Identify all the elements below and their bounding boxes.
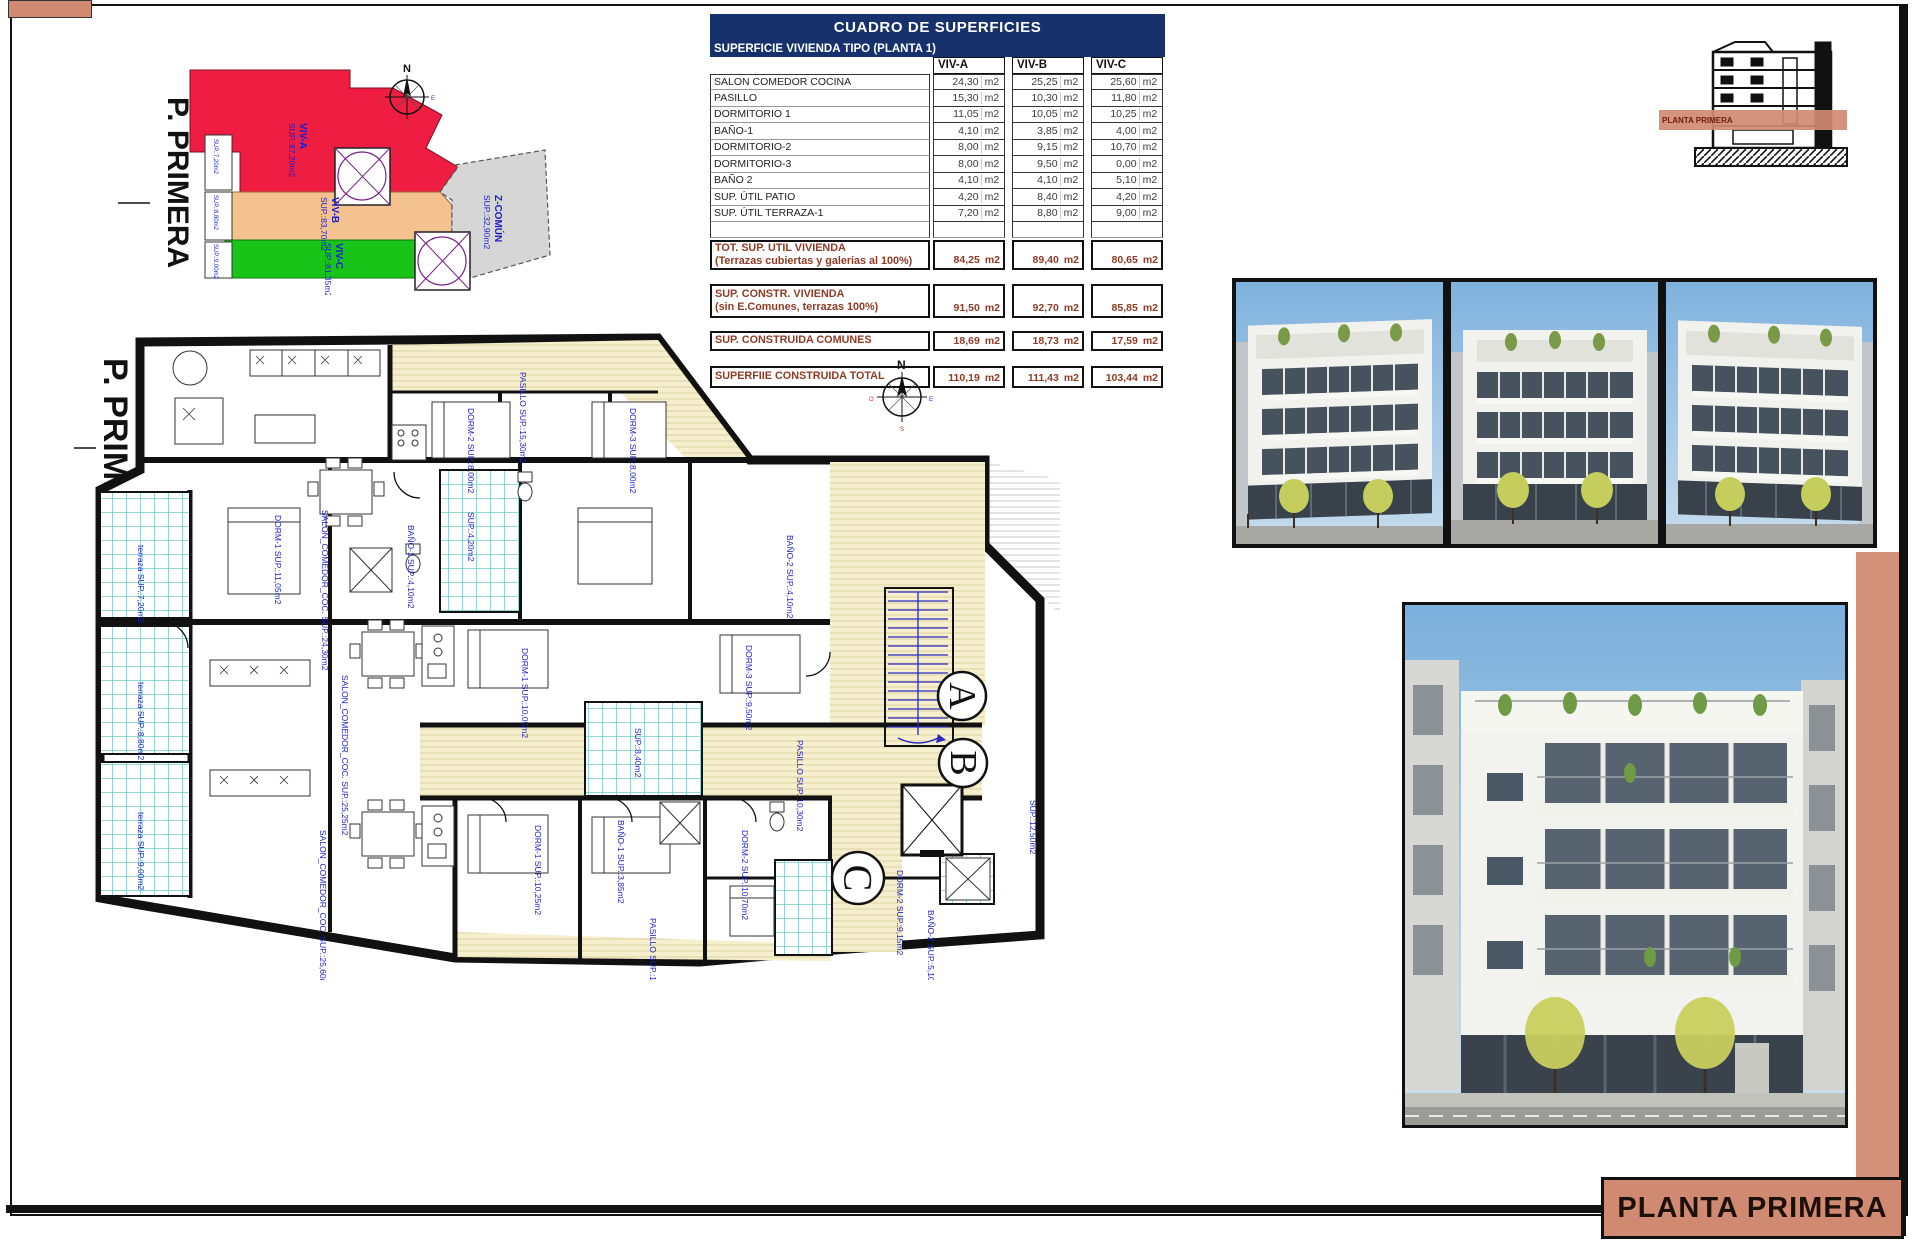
svg-text:DORM-3 SUP.:8,00m2: DORM-3 SUP.:8,00m2: [628, 408, 638, 494]
sheet-title: PLANTA PRIMERA: [1617, 1192, 1887, 1225]
svg-text:A: A: [941, 682, 983, 710]
table-row: BAÑO-1 4,10m2 3,85m2 4,00m2: [710, 123, 1165, 140]
key-plan-floor-label: P. PRIMERA: [118, 97, 194, 268]
svg-text:DORM-1 SUP.:10,25m2: DORM-1 SUP.:10,25m2: [533, 825, 543, 915]
elevator-symbol: [415, 232, 470, 290]
table-row: SUP. ÚTIL PATIO 4,20m2 8,40m2 4,20m2: [710, 189, 1165, 206]
summary-row-util: TOT. SUP. UTIL VIVIENDA(Terrazas cubiert…: [710, 240, 1165, 270]
svg-text:O: O: [869, 397, 874, 403]
svg-text:SUP.:32,90m2: SUP.:32,90m2: [482, 195, 492, 249]
svg-text:SALON_COMEDOR_COC. SUP.:25,60m: SALON_COMEDOR_COC. SUP.:25,60m2: [318, 830, 328, 980]
svg-text:SUP.:7,20m2: SUP.:7,20m2: [212, 139, 218, 175]
elevator: [902, 785, 962, 857]
table-row: SUP. ÚTIL TERRAZA-1 7,20m2 8,80m2 9,00m2: [710, 206, 1165, 223]
col-viv-c: VIV-C: [1091, 57, 1163, 74]
render-photo-left: [1232, 278, 1447, 548]
svg-text:N: N: [403, 63, 411, 75]
table-row: DORMITORIO-2 8,00m2 9,15m2 10,70m2: [710, 140, 1165, 157]
drawing-sheet: CUADRO DE SUPERFICIES SUPERFICIE VIVIEND…: [0, 0, 1920, 1244]
stair-letter-c: C: [832, 852, 884, 904]
section-ground-hatch: [1695, 148, 1847, 166]
key-terrace-strips: SUP.:7,20m2 SUP.:8,80m2 SUP.:9,00m2: [205, 135, 232, 280]
svg-text:C: C: [836, 865, 881, 892]
svg-text:E: E: [929, 397, 933, 403]
svg-text:O: O: [377, 96, 382, 102]
svg-text:SUP.:4,20m2: SUP.:4,20m2: [466, 512, 476, 562]
svg-text:terraza SUP.:7,20m2: terraza SUP.:7,20m2: [136, 545, 146, 624]
svg-text:BAÑO-2 SUP.:5,10m2: BAÑO-2 SUP.:5,10m2: [926, 910, 936, 980]
compass-icon: N E S O: [869, 358, 933, 433]
svg-text:SUP.:12,50m2: SUP.:12,50m2: [1028, 800, 1038, 854]
section-band-label: PLANTA PRIMERA: [1662, 116, 1733, 125]
svg-text:B: B: [942, 750, 984, 775]
floor-plan: P. PRIMERA: [70, 330, 1060, 980]
elevator-symbol: [335, 148, 390, 205]
svg-text:terraza SUP.:8,80m2: terraza SUP.:8,80m2: [136, 682, 146, 761]
svg-text:BAÑO-1 SUP.:3,85m2: BAÑO-1 SUP.:3,85m2: [616, 820, 626, 904]
main-building: [1461, 691, 1803, 1093]
svg-text:SUP.:8,40m2: SUP.:8,40m2: [633, 728, 643, 778]
table-row: SALON COMEDOR COCINA 24,30m2 25,25m2 25,…: [710, 74, 1165, 91]
key-plan: P. PRIMERA SUP.:7,20m2 SUP.:8,80m2 SUP.:…: [110, 45, 580, 295]
svg-text:S: S: [405, 124, 409, 130]
svg-text:SUP.:8,80m2: SUP.:8,80m2: [212, 195, 218, 231]
col-viv-a: VIV-A: [933, 57, 1005, 74]
svg-text:PASILLO SUP.:11,80m2: PASILLO SUP.:11,80m2: [648, 918, 658, 980]
svg-text:SALON_COMEDOR_COC. SUP.:25,25m: SALON_COMEDOR_COC. SUP.:25,25m2: [340, 675, 350, 836]
table-row: DORMITORIO 1 11,05m2 10,05m2 10,25m2: [710, 107, 1165, 124]
svg-text:PASILLO SUP.:10,30m2: PASILLO SUP.:10,30m2: [795, 740, 805, 832]
table-title: CUADRO DE SUPERFICIES: [710, 14, 1165, 40]
corner-accent-strip: [8, 0, 92, 18]
svg-text:VIV-A: VIV-A: [297, 123, 308, 149]
svg-text:DORM-1 SUP.:11,05m2: DORM-1 SUP.:11,05m2: [273, 515, 283, 605]
svg-text:E: E: [431, 96, 435, 102]
svg-text:PASILLO SUP.:15,30m2: PASILLO SUP.:15,30m2: [518, 372, 528, 464]
svg-text:DORM-2 SUP.:9,15m2: DORM-2 SUP.:9,15m2: [895, 870, 905, 956]
svg-text:DORM-2 SUP.:10,70m2: DORM-2 SUP.:10,70m2: [740, 830, 750, 920]
section-lines: [1713, 42, 1831, 148]
sheet-border-bottom: [6, 1205, 1603, 1213]
zone-label-comun: Z-COMÚN SUP.:32,90m2: [482, 195, 505, 249]
sheet-border-right: [1899, 4, 1906, 1236]
svg-text:SUP.:9,00m2: SUP.:9,00m2: [212, 244, 218, 280]
building-section: PLANTA PRIMERA: [1655, 30, 1855, 185]
svg-text:DORM-1 SUP.:10,05m2: DORM-1 SUP.:10,05m2: [520, 648, 530, 738]
stair-letter-a: A: [938, 672, 986, 720]
zone-label-viv-c: VIV-C SUP.:81,35m2: [323, 243, 344, 295]
svg-text:VIV-B: VIV-B: [329, 197, 340, 223]
svg-text:SALON_COMEDOR_COC. SUP.:24,30m: SALON_COMEDOR_COC. SUP.:24,30m2: [320, 510, 330, 671]
svg-text:P. PRIMERA: P. PRIMERA: [161, 97, 194, 268]
table-subtitle: SUPERFICIE VIVIENDA TIPO (PLANTA 1): [710, 40, 1165, 57]
svg-text:DORM-2 SUP.:8,00m2: DORM-2 SUP.:8,00m2: [466, 408, 476, 494]
render-photo-center: [1447, 278, 1662, 548]
render-photo-large: [1402, 602, 1848, 1128]
svg-text:N: N: [897, 358, 906, 372]
svg-text:terraza SUP.:9,00m2: terraza SUP.:9,00m2: [136, 812, 146, 891]
summary-row-constr: SUP. CONSTR. VIVIENDA(sin E.Comunes, ter…: [710, 284, 1165, 318]
svg-text:DORM-3 SUP.:9,50m2: DORM-3 SUP.:9,50m2: [744, 645, 754, 731]
right-accent-strip: [1856, 552, 1899, 1208]
svg-text:BAÑO-2 SUP.:4,10m2: BAÑO-2 SUP.:4,10m2: [785, 535, 795, 619]
svg-text:SUP.:87,20m2: SUP.:87,20m2: [287, 123, 297, 177]
stair-letter-b: B: [939, 739, 987, 787]
svg-text:VIV-C: VIV-C: [333, 243, 344, 269]
table-header-row: VIV-A VIV-B VIV-C: [710, 57, 1165, 74]
render-photo-right: [1662, 278, 1877, 548]
table-row: PASILLO 15,30m2 10,30m2 11,80m2: [710, 90, 1165, 107]
svg-text:BAÑO-1 SUP.:4,10m2: BAÑO-1 SUP.:4,10m2: [406, 525, 416, 609]
table-empty-row: [710, 222, 1165, 238]
title-block: PLANTA PRIMERA: [1601, 1177, 1904, 1239]
svg-text:SUP.:81,35m2: SUP.:81,35m2: [323, 243, 333, 295]
col-viv-b: VIV-B: [1012, 57, 1084, 74]
table-row: BAÑO 2 4,10m2 4,10m2 5,10m2: [710, 173, 1165, 190]
table-row: DORMITORIO-3 8,00m2 9,50m2 0,00m2: [710, 156, 1165, 173]
svg-text:S: S: [900, 427, 904, 433]
svg-text:Z-COMÚN: Z-COMÚN: [492, 195, 505, 242]
